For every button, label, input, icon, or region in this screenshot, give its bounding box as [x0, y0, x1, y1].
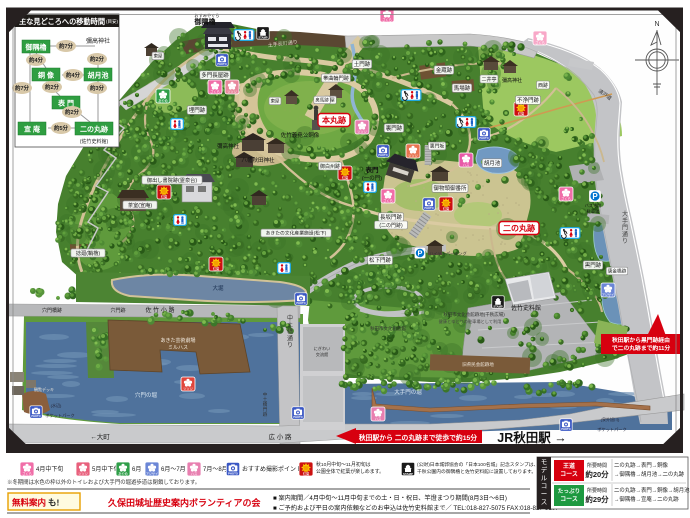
svg-text:ツツジ: ツツジ: [408, 154, 418, 158]
svg-text:多門長屋跡: 多門長屋跡: [201, 71, 229, 79]
svg-text:※冬期間は水色の枠以外のトイレおよび大手門の堀遊歩道は閉鎖し: ※冬期間は水色の枠以外のトイレおよび大手門の堀遊歩道は閉鎖しております。: [7, 478, 200, 486]
svg-text:紅葉: 紅葉: [303, 471, 310, 476]
svg-text:秋田市文化創造館: 秋田市文化創造館: [370, 325, 406, 332]
svg-text:二井亭: 二井亭: [481, 76, 496, 83]
svg-text:5月中下旬: 5月中下旬: [92, 465, 119, 473]
svg-text:■ 案内期間／4月中旬～11月中旬までの土・日・祝日、竿燈ま: ■ 案内期間／4月中旬～11月中旬までの土・日・祝日、竿燈まつり期間(8月3日～…: [273, 494, 507, 502]
svg-text:バス専用: バス専用: [585, 202, 602, 209]
svg-text:さくら: さくら: [22, 471, 32, 476]
svg-text:ポケットパーク: ポケットパーク: [597, 426, 626, 433]
svg-text:ツツジ: ツツジ: [78, 472, 88, 476]
svg-text:紅葉: 紅葉: [342, 175, 349, 180]
svg-text:→御隅櫓→胡月池→二の丸跡: →御隅櫓→胡月池→二の丸跡: [614, 470, 685, 478]
svg-text:にぎわい: にぎわい: [314, 345, 331, 352]
svg-text:約5分: 約5分: [54, 124, 69, 132]
svg-text:唐金橋跡: 唐金橋跡: [608, 268, 627, 275]
svg-text:紅葉: 紅葉: [518, 111, 525, 116]
svg-text:王道: 王道: [563, 462, 575, 470]
svg-text:胡月池: 胡月池: [88, 71, 109, 80]
svg-text:所要時間: 所要時間: [587, 487, 607, 494]
svg-text:約4分: 約4分: [66, 71, 81, 79]
svg-text:千秋公園内の御隅櫓と佐竹史料館に設置しております。: 千秋公園内の御隅櫓と佐竹史料館に設置しております。: [417, 468, 536, 475]
svg-text:御白州跡: 御白州跡: [320, 163, 340, 170]
svg-text:4月中下旬: 4月中下旬: [36, 465, 63, 473]
svg-text:約7分: 約7分: [59, 42, 74, 50]
svg-text:約4分: 約4分: [29, 56, 44, 64]
svg-text:佐竹史料館: 佐竹史料館: [511, 304, 541, 312]
svg-text:捻廻(鞘櫓): 捻廻(鞘櫓): [76, 249, 100, 257]
svg-text:さくら: さくら: [382, 17, 392, 22]
svg-text:ハス: ハス: [463, 162, 469, 167]
svg-text:さくら: さくら: [535, 40, 545, 45]
svg-text:ハス: ハス: [191, 471, 197, 476]
svg-text:(泉外旭川): (泉外旭川): [601, 416, 620, 422]
svg-text:たっぷり: たっぷり: [558, 488, 580, 495]
svg-text:さくら: さくら: [383, 198, 393, 203]
svg-text:紅葉: 紅葉: [443, 206, 450, 211]
svg-text:交流館: 交流館: [316, 351, 329, 358]
svg-text:胡月池: 胡月池: [484, 159, 501, 167]
svg-text:秋田駅から黒門跡経由: 秋田駅から黒門跡経由: [612, 336, 670, 344]
svg-text:彌高神社: 彌高神社: [86, 37, 110, 45]
svg-text:健康とゆとりの駐車場として利用: 健康とゆとりの駐車場として利用: [439, 318, 502, 325]
svg-text:金蔵跡: 金蔵跡: [436, 66, 453, 74]
svg-text:アジサイ: アジサイ: [146, 471, 159, 476]
svg-text:二の丸跡: 二の丸跡: [80, 125, 108, 134]
svg-text:二の丸跡→表門→銅像: 二の丸跡→表門→銅像: [614, 461, 669, 469]
svg-text:大手門通り: 大手門通り: [622, 210, 628, 245]
svg-text:黒門跡: 黒門跡: [585, 261, 602, 269]
svg-text:埋門跡: 埋門跡: [189, 106, 206, 114]
svg-text:ツツジ: ツツジ: [357, 130, 367, 134]
svg-text:約3分: 約3分: [90, 84, 105, 92]
svg-text:裏門坂: 裏門坂: [430, 143, 445, 150]
svg-text:旧県民会館跡地: 旧県民会館跡地: [462, 361, 494, 368]
svg-text:あやめ: あやめ: [158, 98, 168, 103]
svg-text:公園全体で紅葉が楽しめます。: 公園全体で紅葉が楽しめます。: [316, 468, 384, 475]
svg-text:N: N: [654, 21, 659, 28]
svg-text:おすすめ撮影ポイント: おすすめ撮影ポイント: [242, 465, 302, 473]
svg-text:佐竹義堯公銅像: 佐竹義堯公銅像: [281, 131, 320, 139]
svg-text:も!: も!: [48, 498, 60, 508]
svg-text:ツツジ: ツツジ: [227, 90, 237, 94]
svg-text:コース: コース: [560, 496, 578, 503]
svg-text:中土橋門跡: 中土橋門跡: [263, 391, 268, 418]
svg-text:八幡秋田神社: 八幡秋田神社: [241, 156, 275, 164]
svg-text:御物頭御番所: 御物頭御番所: [433, 184, 467, 192]
svg-text:■ ご予約および平日の案内依頼などのお申込は佐竹史料館まで／: ■ ご予約および平日の案内依頼などのお申込は佐竹史料館まで／ TEL:018-8…: [273, 504, 559, 512]
svg-text:JR秋田駅 →: JR秋田駅 →: [497, 430, 566, 445]
svg-text:さくら: さくら: [561, 196, 571, 201]
svg-text:紅葉: 紅葉: [161, 194, 168, 199]
svg-text:御隅櫓: 御隅櫓: [194, 17, 216, 26]
svg-text:東屋: 東屋: [271, 98, 280, 105]
svg-text:さくら: さくら: [210, 89, 220, 94]
svg-text:約2分: 約2分: [90, 55, 105, 63]
svg-text:中土橋通り: 中土橋通り: [287, 314, 293, 349]
svg-text:約20分: 約20分: [585, 469, 609, 479]
svg-text:大堀: 大堀: [212, 284, 224, 292]
svg-text:駐車場: 駐車場: [587, 208, 600, 215]
svg-text:本丸跡: 本丸跡: [321, 115, 346, 125]
svg-text:(一の門): (一の門): [362, 175, 382, 182]
svg-text:ハス: ハス: [375, 416, 381, 421]
svg-text:約2分: 約2分: [65, 108, 80, 116]
svg-text:無料案内: 無料案内: [12, 498, 46, 508]
svg-text:約2分: 約2分: [45, 83, 60, 91]
svg-text:所要時間: 所要時間: [587, 462, 607, 469]
svg-text:ミルハス: ミルハス: [168, 345, 188, 351]
svg-text:(公財)日本城郭協会の「日本100名城」記念スタンプは、: (公財)日本城郭協会の「日本100名城」記念スタンプは、: [417, 461, 538, 468]
svg-text:御出し書院跡(霊泉台): 御出し書院跡(霊泉台): [147, 176, 197, 184]
svg-text:茶室(宣庵): 茶室(宣庵): [128, 201, 152, 209]
svg-text:松下門跡: 松下門跡: [369, 256, 392, 264]
svg-text:穴門の堀: 穴門の堀: [135, 391, 158, 399]
svg-text:西跡: 西跡: [538, 82, 548, 89]
svg-text:秋田市文化会館跡地(千秋広場): 秋田市文化会館跡地(千秋広場): [443, 311, 505, 318]
svg-text:あやめ: あやめ: [118, 471, 128, 476]
svg-text:(佐竹史料館): (佐竹史料館): [80, 138, 109, 145]
svg-text:帯曲輪門跡: 帯曲輪門跡: [323, 74, 350, 82]
svg-text:ツツジ: ツツジ: [183, 387, 193, 391]
svg-text:二の丸跡: 二の丸跡: [503, 223, 535, 233]
svg-text:6月～7月: 6月～7月: [161, 466, 186, 473]
svg-text:→御隅櫓→宣庵→二の丸跡: →御隅櫓→宣庵→二の丸跡: [614, 495, 679, 503]
svg-text:表門: 表門: [365, 165, 380, 174]
svg-text:久保田城址歴史案内ボランティアの会: 久保田城址歴史案内ボランティアの会: [108, 497, 261, 508]
svg-text:宣 庵: 宣 庵: [24, 125, 41, 134]
svg-text:約29分: 約29分: [585, 494, 609, 504]
svg-text:広 小 路: 広 小 路: [268, 432, 292, 441]
svg-text:約7分: 約7分: [15, 84, 30, 92]
svg-text:(水辺): (水辺): [51, 402, 62, 408]
svg-text:コース: コース: [560, 471, 578, 478]
svg-text:6月: 6月: [132, 466, 141, 473]
svg-text:おすみやぐら: おすみやぐら: [194, 12, 219, 19]
svg-text:穴門跡: 穴門跡: [110, 307, 125, 314]
svg-text:ハイヤーパーキング: ハイヤーパーキング: [429, 250, 466, 257]
svg-text:土門跡: 土門跡: [354, 60, 371, 68]
svg-text:7月～8月: 7月～8月: [203, 466, 228, 473]
svg-text:←大町: ←大町: [90, 432, 110, 441]
svg-text:不浄門跡: 不浄門跡: [517, 96, 540, 104]
svg-text:あきたの文化産業施設(松下): あきたの文化産業施設(松下): [266, 230, 327, 237]
svg-text:(二の門跡): (二の門跡): [379, 222, 403, 229]
svg-text:ポケットパーク: ポケットパーク: [45, 412, 74, 419]
svg-text:佐 竹 小 路: 佐 竹 小 路: [145, 306, 174, 314]
svg-text:銅 像: 銅 像: [38, 71, 55, 80]
svg-text:(目安): (目安): [106, 18, 118, 25]
svg-text:紅葉: 紅葉: [213, 266, 220, 271]
svg-text:二の丸跡→表門→銅像→胡月池: 二の丸跡→表門→銅像→胡月池: [614, 486, 690, 494]
svg-text:主な見どころへの移動時間: 主な見どころへの移動時間: [19, 17, 105, 26]
svg-text:東屋: 東屋: [154, 53, 163, 60]
svg-text:裏門跡: 裏門跡: [386, 124, 403, 132]
svg-text:大手門の堀: 大手門の堀: [394, 388, 422, 396]
svg-text:彌高神社: 彌高神社: [217, 142, 240, 150]
svg-text:長坂門跡: 長坂門跡: [380, 213, 403, 221]
svg-text:あきた芸術劇場: あきた芸術劇場: [160, 337, 195, 344]
svg-text:アジサイ: アジサイ: [602, 292, 615, 297]
svg-text:穴門橋跡: 穴門橋跡: [42, 307, 62, 314]
svg-text:秋田駅から 二の丸跡まで徒歩で約15分: 秋田駅から 二の丸跡まで徒歩で約15分: [358, 433, 477, 442]
svg-text:彌高神社: 彌高神社: [502, 77, 522, 84]
svg-text:で二の丸跡まで約11分: で二の丸跡まで約11分: [612, 344, 671, 352]
svg-text:奥馬跡: 奥馬跡: [315, 97, 329, 104]
svg-text:観覧デッキ: 観覧デッキ: [34, 386, 54, 392]
svg-text:御隅櫓: 御隅櫓: [25, 43, 47, 52]
svg-text:馬場跡: 馬場跡: [454, 84, 471, 92]
svg-text:秋10月中旬～11月初旬は: 秋10月中旬～11月初旬は: [316, 461, 371, 468]
